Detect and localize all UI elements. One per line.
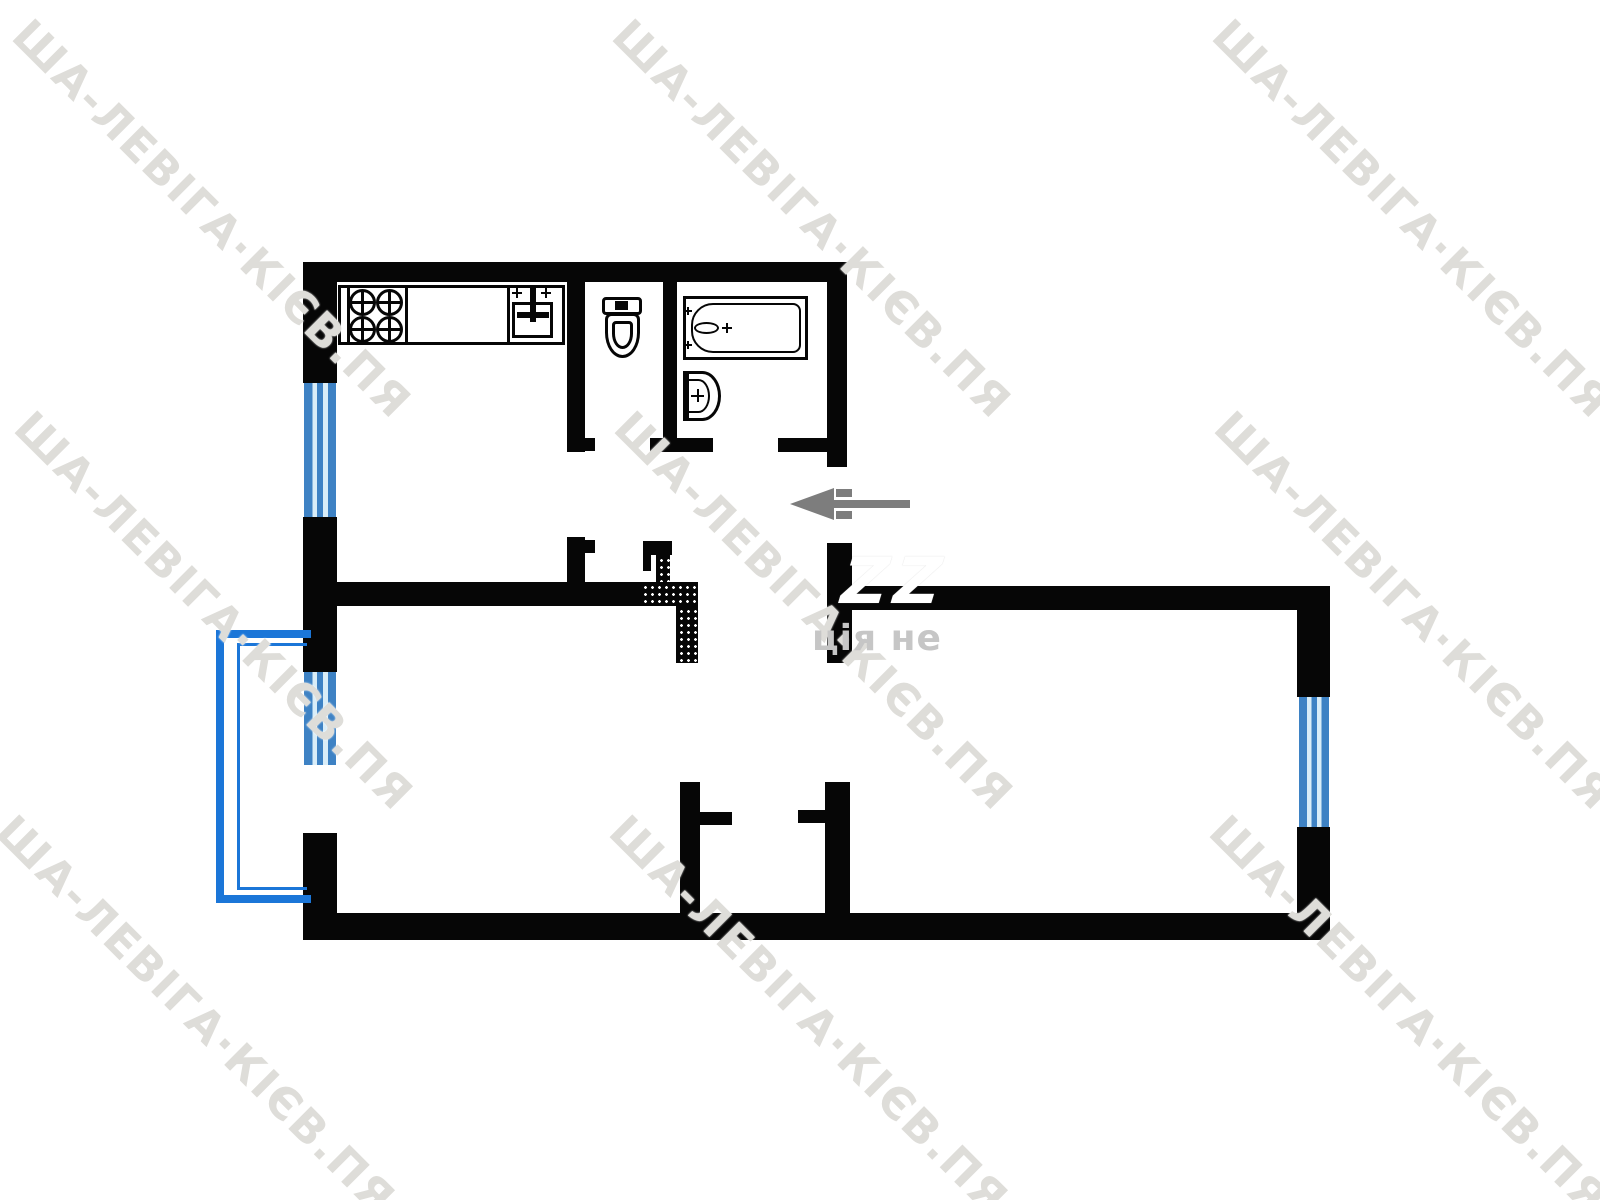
watermark-tile: ША-ЛЕВІГА·КІЄВ.ПЯ [4, 402, 423, 821]
wall-closet-left-stub [680, 782, 700, 913]
counter-divider-1 [347, 285, 350, 345]
wall-bottom [303, 913, 1330, 940]
watermark-tile: ША-ЛЕВІГА·КІЄВ.ПЯ [1204, 402, 1600, 821]
entrance-arrow-shaft [822, 500, 910, 508]
wall-kitchen-door-stub [567, 537, 585, 582]
sink-faucet-crossbar [517, 312, 549, 318]
entrance-arrow-flange-bottom [836, 511, 852, 519]
stove-burner-icon [349, 316, 376, 343]
bathtub-drain [694, 322, 719, 334]
wall-kitchen-living-divider [303, 582, 640, 606]
duct-corner-hook [643, 541, 651, 571]
watermark-tile: ША-ЛЕВІГА·КІЄВ.ПЯ [1202, 10, 1600, 429]
wall-wc-bath-divider [663, 282, 677, 440]
bathtub-valve-top [684, 307, 692, 315]
watermark-tile: ША-ЛЕВІГА·КІЄВ.ПЯ [1199, 806, 1600, 1200]
wall-right-lower [1297, 827, 1330, 940]
stove-burner-icon [349, 289, 376, 316]
vent-duct-vertical [676, 606, 698, 663]
wall-bath-right [827, 262, 847, 467]
window-kitchen [304, 383, 336, 517]
vent-duct-top [656, 555, 670, 582]
washbasin-tap-icon [691, 389, 704, 402]
wall-wc-left [567, 282, 585, 452]
stove-burner-icon [376, 316, 403, 343]
toilet-button [615, 301, 628, 310]
watermark-tile: ША-ЛЕВІГА·КІЄВ.ПЯ [0, 806, 405, 1200]
wall-bedroom-top [847, 586, 1330, 610]
wall-bath-bottom-left [650, 438, 713, 452]
vent-duct-horizontal [640, 582, 698, 606]
floor-plan-canvas: ША-ЛЕВІГА·КІЄВ.ПЯ ША-ЛЕВІГА·КІЄВ.ПЯ ША-Л… [0, 0, 1600, 1200]
window-bedroom [1299, 697, 1329, 827]
sink-tap-left-icon [512, 288, 522, 298]
counter-divider-2 [405, 285, 408, 345]
balcony-outline [216, 630, 311, 903]
sink-tap-right-icon [541, 288, 551, 298]
stove-burner-icon [376, 289, 403, 316]
watermark-tile: ША-ЛЕВІГА·КІЄВ.ПЯ [599, 806, 1018, 1200]
balcony-inner-line [237, 643, 307, 890]
bathtub-tap-icon [722, 323, 732, 333]
wall-bedroom-left-lower [825, 782, 850, 913]
watermark-tile: ША-ЛЕВІГА·КІЄВ.ПЯ [604, 402, 1023, 821]
entrance-arrow-flange-top [836, 489, 852, 497]
door-jamb-closet-right [798, 810, 825, 823]
counter-divider-3 [507, 285, 510, 345]
watermark-tile: ША-ЛЕВІГА·КІЄВ.ПЯ [2, 10, 421, 429]
door-jamb-kitchen [585, 540, 595, 553]
bathtub-valve-bottom [684, 341, 692, 349]
door-jamb-wc-left [585, 438, 595, 451]
door-jamb-closet-left [700, 812, 732, 825]
wall-right-upper [1297, 586, 1330, 697]
wall-left-upper [303, 262, 337, 383]
wall-top [303, 262, 847, 282]
